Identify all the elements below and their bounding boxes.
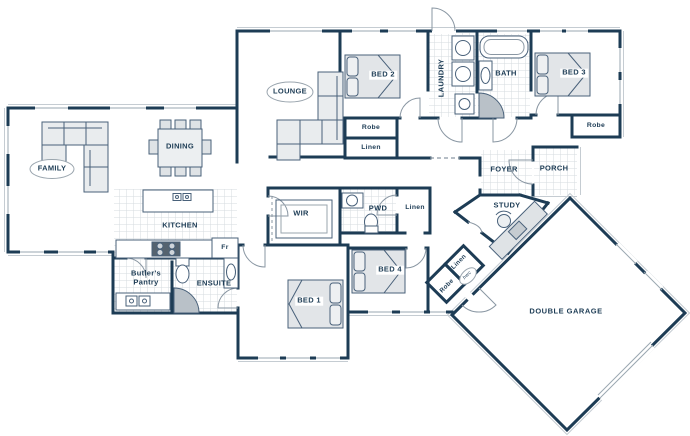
linen-hall-label: Linen [405,204,425,212]
laundry-label: LAUNDRY [438,59,447,98]
robe-bed3-label: Robe [587,122,605,130]
butlers-pantry-label: Butler's Pantry [123,269,169,286]
floor-plan: FAMILY DINING LOUNGE KITCHEN Fr Butler's… [0,0,690,436]
pwd-label: PWD [369,205,387,214]
bath-label: BATH [495,70,516,79]
robe-bed2-label: Robe [362,124,380,132]
bed3-label: BED 3 [560,69,588,78]
study-label: STUDY [494,202,521,211]
kitchen-bench-icon [116,240,212,258]
family-sofa-icon [42,122,108,192]
bed2-label: BED 2 [369,71,397,80]
kitchen-island-icon [143,190,213,212]
fridge-label: Fr [221,244,228,252]
kitchen-label: KITCHEN [162,222,197,231]
family-label: FAMILY [38,165,67,174]
floorplan-drawing [0,0,690,436]
dining-label: DINING [166,143,194,152]
bed4-label: BED 4 [376,266,404,275]
wir-label: WIR [291,210,310,219]
bed1-label: BED 1 [295,297,323,306]
porch-label: PORCH [540,165,569,174]
wir-closet-icon [272,196,332,242]
linen-bed2-label: Linen [361,144,381,152]
butlers-bench-icon [116,293,170,310]
foyer-label: FOYER [490,166,517,175]
double-garage-label: DOUBLE GARAGE [529,308,602,317]
lounge-label: LOUNGE [273,88,307,97]
ensuite-label: ENSUITE [197,280,232,289]
laundry-fixtures [452,36,474,114]
